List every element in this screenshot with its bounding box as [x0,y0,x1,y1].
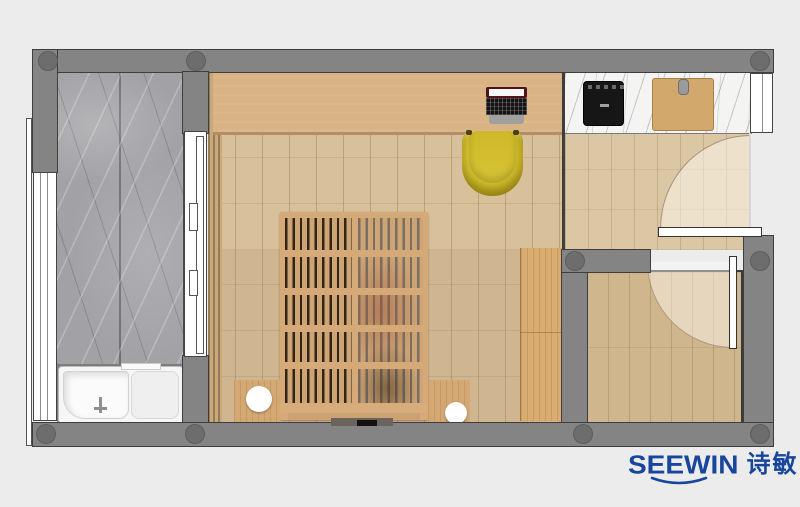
column [185,424,205,444]
chair-arm-left [466,130,472,135]
bed-slat-panel-right [358,218,423,403]
wall-unit-handle [357,420,377,426]
column [186,51,206,71]
bathroom-marble-floor [57,72,183,364]
bed-cross-rail [285,250,423,257]
column [750,251,770,271]
bathtub [58,366,184,424]
laptop-screen-panel [489,89,524,96]
brand-logo: SEEWIN 诗敏 [628,451,798,479]
column [750,51,770,71]
column [750,424,770,444]
bathtub-ledge [121,363,161,370]
wall-mounted-unit [331,418,393,426]
balcony-edge-strip [26,118,32,446]
bed-slat-panel-left [285,218,352,403]
wall-bathroom-upper [183,72,208,133]
bathtub-basin [63,371,129,419]
laptop-keyboard [486,98,527,115]
entrance-door-frame [749,133,751,229]
partition-main-entry [562,72,565,250]
column [38,51,58,71]
window-left [33,172,57,421]
side-cabinet [520,248,564,421]
cooktop-knob [596,85,600,89]
wall-top [33,50,773,72]
cooktop [583,81,624,126]
floorplan-render: SEEWIN 诗敏 [0,0,800,507]
round-stool-left [246,386,272,412]
bathroom-sliding-door [184,131,207,357]
cutting-board [652,78,714,131]
slatted-bed-platform [280,212,428,420]
sliding-door-panel [196,136,204,354]
yellow-chair [462,131,523,196]
wall-secondary-left [562,250,587,423]
faucet-icon [99,397,102,413]
cooktop-display [600,104,609,107]
logo-swoosh-icon [650,476,708,486]
sliding-door-handle [189,270,198,296]
wall-bottom [33,423,773,446]
bathtub-lid [131,371,179,419]
laptop [486,87,527,124]
cooktop-knob [588,85,592,89]
column [36,424,56,444]
column [573,424,593,444]
bed-cross-rail [285,288,423,295]
laptop-screen [486,87,527,98]
cooktop-knob [604,85,608,89]
brand-wordmark: SEEWIN [628,452,738,478]
cutting-board-handle [678,79,689,95]
brand-logo-en-wrap: SEEWIN [628,451,738,479]
round-stool-right [445,402,467,424]
bed-cross-rail [285,325,423,332]
chair-seat [469,131,516,183]
entrance-door-leaf [658,227,762,237]
secondary-room-door-leaf [729,256,737,349]
cooktop-knob [612,85,616,89]
bed-foot-board [280,403,428,413]
wall-bathroom-lower [183,356,208,423]
cooktop-knob [620,85,624,89]
sliding-door-handle [189,203,198,231]
column [565,251,585,271]
bed-cross-rail [285,362,423,369]
laptop-palmrest [489,115,524,124]
window-top-right [750,73,773,133]
brand-wordmark-chinese: 诗敏 [746,451,798,477]
chair-arm-right [513,130,519,135]
